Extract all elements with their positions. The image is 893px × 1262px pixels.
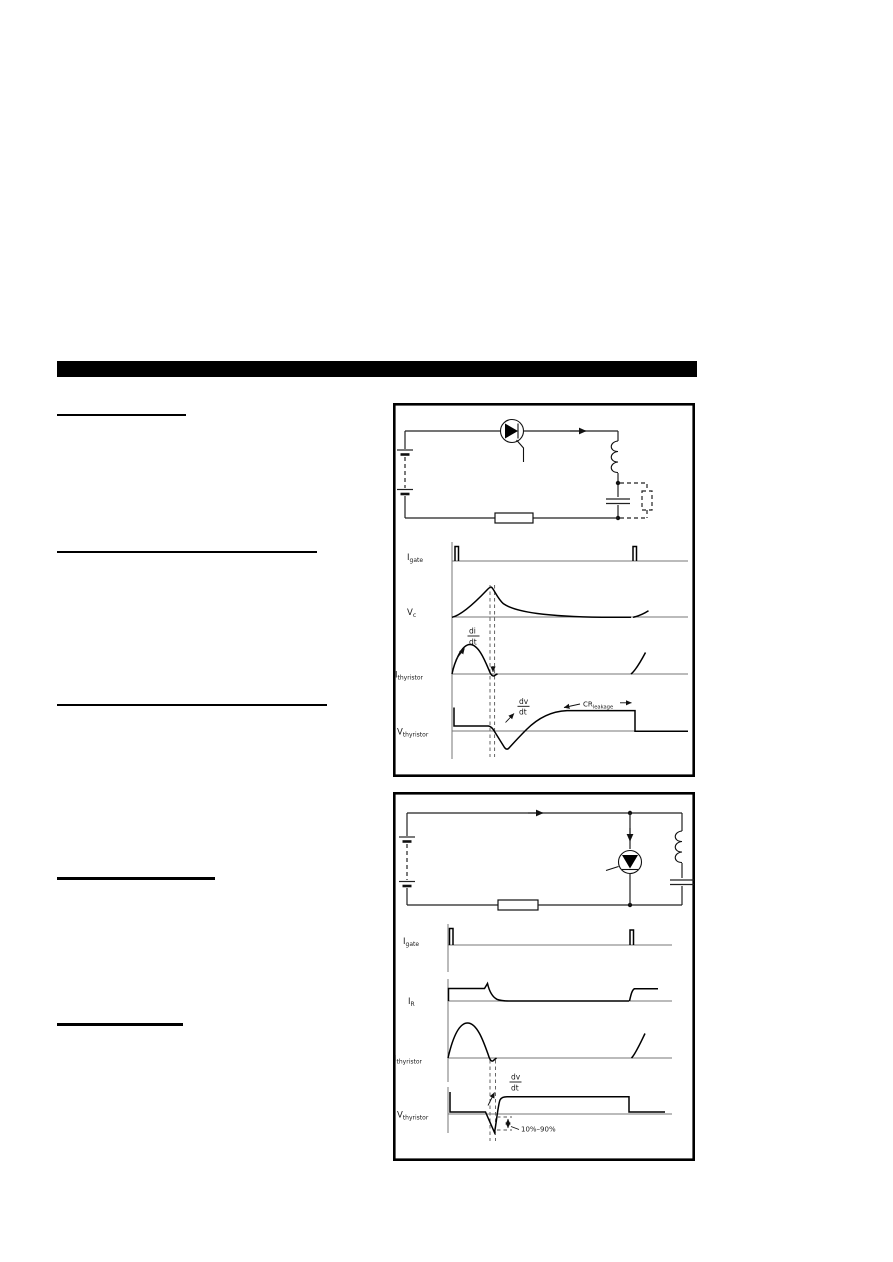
thyristor-symbol — [501, 420, 524, 463]
figure-border — [394, 404, 693, 775]
waveform-vthyristor: dv dt 10%–90% Vthyristor — [397, 1073, 672, 1134]
heading-underline-2 — [57, 551, 317, 553]
circuit-diagram-turn-on — [397, 420, 652, 524]
waveform-label-vc: Vc — [407, 608, 416, 619]
gate-lead — [517, 440, 524, 462]
capacitor-symbol — [670, 880, 694, 885]
svg-text:10%–90%: 10%–90% — [521, 1126, 556, 1134]
battery-symbol — [399, 813, 415, 905]
heading-underline-4 — [57, 877, 215, 880]
cr-leakage-annotation: CRleakage — [564, 701, 632, 711]
heading-underline-3 — [57, 704, 327, 706]
svg-text:dt: dt — [511, 1084, 519, 1093]
inductor-symbol — [611, 441, 618, 473]
document-page: Igate Vc di dt Ithyristor — [0, 0, 893, 1262]
gate-pulse-1 — [455, 547, 459, 562]
thyristor-symbol — [606, 813, 642, 905]
figure-bottom-thyristor-circuit-waveforms: Igate IR Ithyristor dv dt — [393, 792, 695, 1161]
di-dt-annotation: di dt — [456, 627, 480, 660]
dv-dt-annotation: dv dt — [488, 1073, 522, 1106]
waveform-igate: Igate — [407, 542, 688, 592]
gate-pulse-2 — [633, 547, 637, 562]
svg-text:dt: dt — [519, 708, 527, 717]
heading-underline-1 — [57, 414, 186, 416]
dashed-load-resistor — [620, 483, 652, 518]
svg-text:CRleakage: CRleakage — [583, 701, 613, 711]
waveform-ithyristor: Ithyristor — [394, 1014, 672, 1082]
gate-pulse-2 — [630, 930, 634, 945]
figure-border — [394, 793, 693, 1159]
svg-text:di: di — [469, 627, 476, 636]
resistor-symbol — [498, 900, 538, 910]
svg-text:dv: dv — [511, 1073, 521, 1082]
dv-dt-annotation: dv dt — [506, 697, 530, 723]
inductor-symbol — [675, 831, 682, 863]
waveform-label-igate: Igate — [407, 553, 423, 564]
resistor-symbol — [495, 513, 533, 523]
gate-lead — [606, 867, 619, 871]
section-title-bar — [57, 361, 697, 377]
gate-pulse-1 — [450, 929, 454, 946]
waveform-vc: Vc — [407, 579, 688, 649]
circuit-diagram-crowbar — [399, 811, 694, 910]
waveform-label-vthyristor: Vthyristor — [397, 1111, 429, 1122]
svg-text:dt: dt — [469, 638, 477, 647]
waveform-igate: Igate — [403, 924, 672, 972]
waveform-ithyristor: di dt Ithyristor — [395, 627, 688, 702]
waveform-vthyristor: dv dt CRleakage Vthyristor — [397, 697, 688, 759]
svg-text:dv: dv — [519, 697, 529, 706]
heading-underline-5 — [57, 1023, 183, 1026]
node-dot — [616, 481, 620, 485]
waveform-label-ithyristor: Ithyristor — [394, 1055, 423, 1066]
waveform-label-igate: Igate — [403, 937, 419, 948]
waveform-label-vthyristor: Vthyristor — [397, 728, 429, 739]
rise-time-annotation: 10%–90% — [497, 1117, 556, 1134]
capacitor-symbol — [606, 499, 630, 504]
waveform-label-ir: IR — [408, 997, 415, 1008]
waveform-label-ithyristor: Ithyristor — [395, 671, 424, 682]
figure-top-thyristor-circuit-waveforms: Igate Vc di dt Ithyristor — [393, 403, 695, 777]
battery-symbol — [397, 431, 413, 518]
